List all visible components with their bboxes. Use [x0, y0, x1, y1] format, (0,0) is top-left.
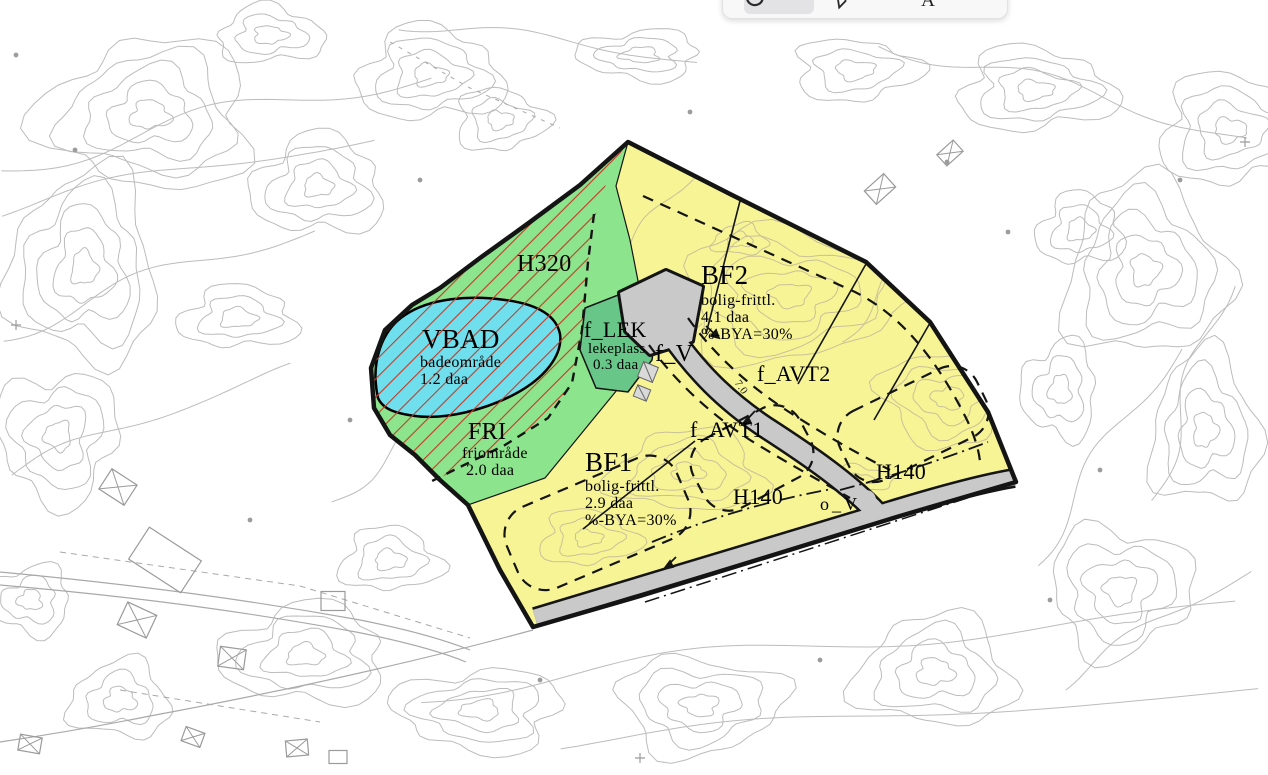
label-fri-code: FRI — [468, 420, 506, 445]
zoning-plan-map[interactable] — [0, 0, 1268, 775]
label-bf2-code: BF2 — [701, 261, 748, 289]
label-bf1-code: BF1 — [585, 448, 632, 476]
label-bf2-bya: %-BYA=30% — [701, 327, 793, 344]
plan-map-viewport[interactable]: VBAD badeområde 1.2 daa H320 FRI friområ… — [0, 0, 1268, 775]
label-vbad-size: 1.2 daa — [420, 372, 468, 389]
label-h320: H320 — [517, 252, 572, 277]
label-bf2-size: 4.1 daa — [701, 310, 749, 327]
label-flek-code: f_LEK — [584, 318, 647, 341]
label-ov: o_V — [820, 495, 860, 514]
annotation-toolbar: A — [722, 0, 1008, 19]
label-fri-desc: friområde — [462, 446, 528, 463]
label-flek-size: 0.3 daa — [593, 358, 638, 374]
label-bf2-desc: bolig-frittl. — [701, 293, 776, 310]
pen-button[interactable] — [831, 0, 901, 14]
label-vbad-code: VBAD — [422, 325, 500, 353]
label-favt1: f_AVT1 — [690, 418, 764, 441]
label-h140-east: H140 — [876, 460, 926, 483]
label-favt2: f_AVT2 — [757, 362, 831, 385]
lasso-selection-icon — [744, 0, 766, 10]
text-icon: A — [921, 0, 935, 12]
label-fri-size: 2.0 daa — [466, 463, 514, 480]
label-bf1-bya: %-BYA=30% — [585, 513, 677, 530]
label-fv: f_V — [655, 342, 693, 367]
label-bf1-desc: bolig-frittl. — [585, 479, 660, 496]
pen-icon — [831, 0, 853, 10]
label-h140-west: H140 — [733, 485, 783, 508]
lasso-selection-button[interactable] — [744, 0, 814, 14]
label-flek-desc: lekeplass — [588, 342, 646, 358]
label-bf1-size: 2.9 daa — [585, 496, 633, 513]
label-vbad-desc: badeområde — [420, 355, 501, 372]
text-button[interactable]: A — [893, 0, 963, 14]
